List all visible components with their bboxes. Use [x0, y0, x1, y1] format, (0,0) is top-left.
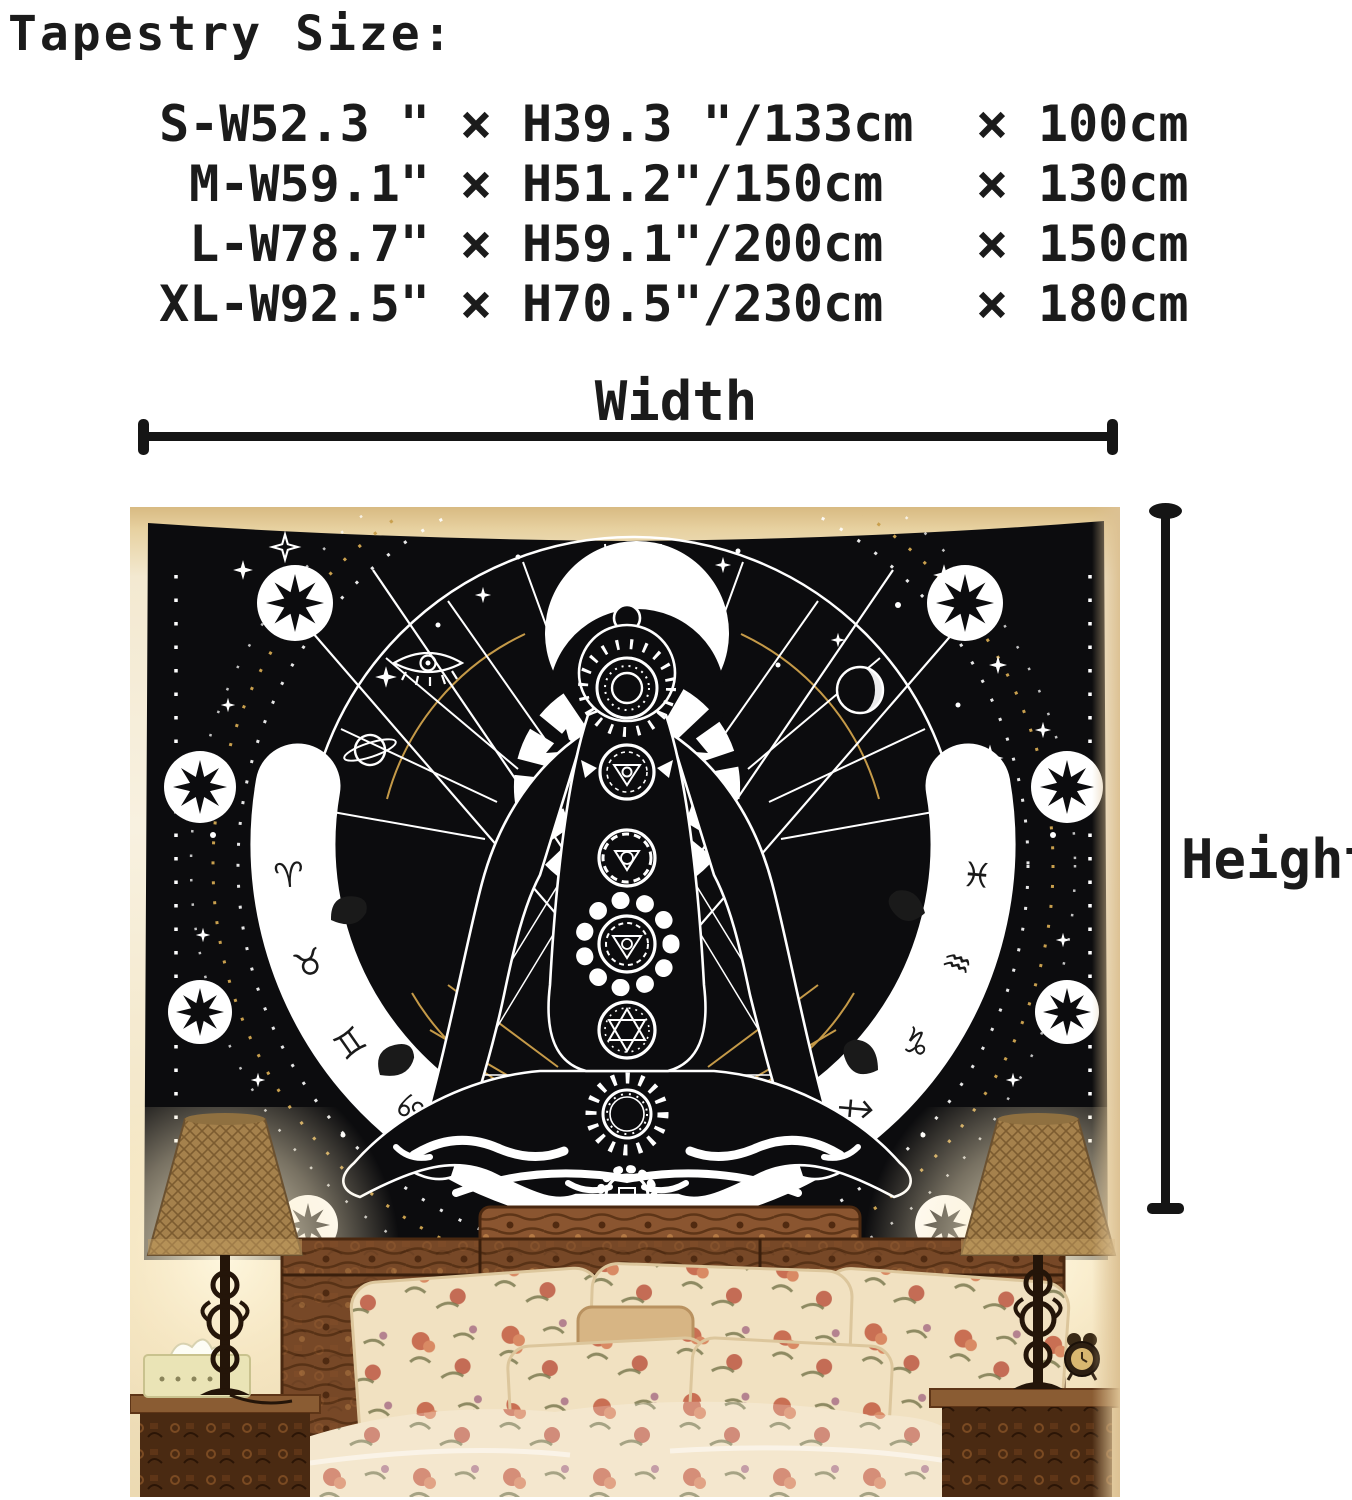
multiply-sign: × [430, 152, 522, 215]
size-label: L-W78.7" [138, 215, 430, 273]
height-line-top-cap [1149, 503, 1182, 519]
height-line-bottom-cap [1147, 1203, 1184, 1214]
multiply-sign: × [946, 152, 1038, 215]
zodiac-aries: ♈ [272, 855, 306, 898]
width-label: Width [190, 370, 1162, 433]
wall-corner-shade [1092, 507, 1120, 1497]
multiply-sign: × [430, 272, 522, 335]
cm-value: 180cm [1038, 275, 1208, 333]
height-value: H39.3 "/133cm [522, 95, 946, 153]
size-table: S-W52.3 " × H39.3 "/133cm × 100cm M-W59.… [138, 92, 1218, 332]
size-label: XL-W92.5" [138, 275, 430, 333]
size-label: M-W59.1" [138, 155, 430, 213]
width-line-left-cap [138, 419, 149, 455]
multiply-sign: × [430, 212, 522, 275]
multiply-sign: × [946, 92, 1038, 155]
tapestry-size-chart-image: Tapestry Size: S-W52.3 " × H39.3 "/133cm… [0, 0, 1352, 1500]
width-line-right-cap [1107, 419, 1118, 455]
multiply-sign: × [430, 92, 522, 155]
moon-sphere-icon [837, 667, 883, 713]
size-label: S-W52.3 " [138, 95, 430, 153]
height-value: H51.2"/150cm [522, 155, 946, 213]
size-row-s: S-W52.3 " × H39.3 "/133cm × 100cm [138, 92, 1218, 152]
cm-value: 100cm [1038, 95, 1208, 153]
bedroom-furniture [130, 1107, 1120, 1497]
multiply-sign: × [946, 272, 1038, 335]
size-row-l: L-W78.7" × H59.1"/200cm × 150cm [138, 212, 1218, 272]
cm-value: 150cm [1038, 215, 1208, 273]
size-row-xl: XL-W92.5" × H70.5"/230cm × 180cm [138, 272, 1218, 332]
multiply-sign: × [946, 212, 1038, 275]
size-row-m: M-W59.1" × H51.2"/150cm × 130cm [138, 152, 1218, 212]
bedroom-photo: ♈ ♉ ♊ ♋ ♓ ♒ ♑ ♐ [130, 507, 1120, 1497]
height-label: Height [1181, 828, 1352, 891]
width-measure-line [143, 432, 1115, 441]
zodiac-pisces: ♓ [960, 855, 994, 898]
height-measure-line [1161, 511, 1170, 1209]
height-value: H59.1"/200cm [522, 215, 946, 273]
height-value: H70.5"/230cm [522, 275, 946, 333]
page-title: Tapestry Size: [8, 6, 455, 62]
cm-value: 130cm [1038, 155, 1208, 213]
